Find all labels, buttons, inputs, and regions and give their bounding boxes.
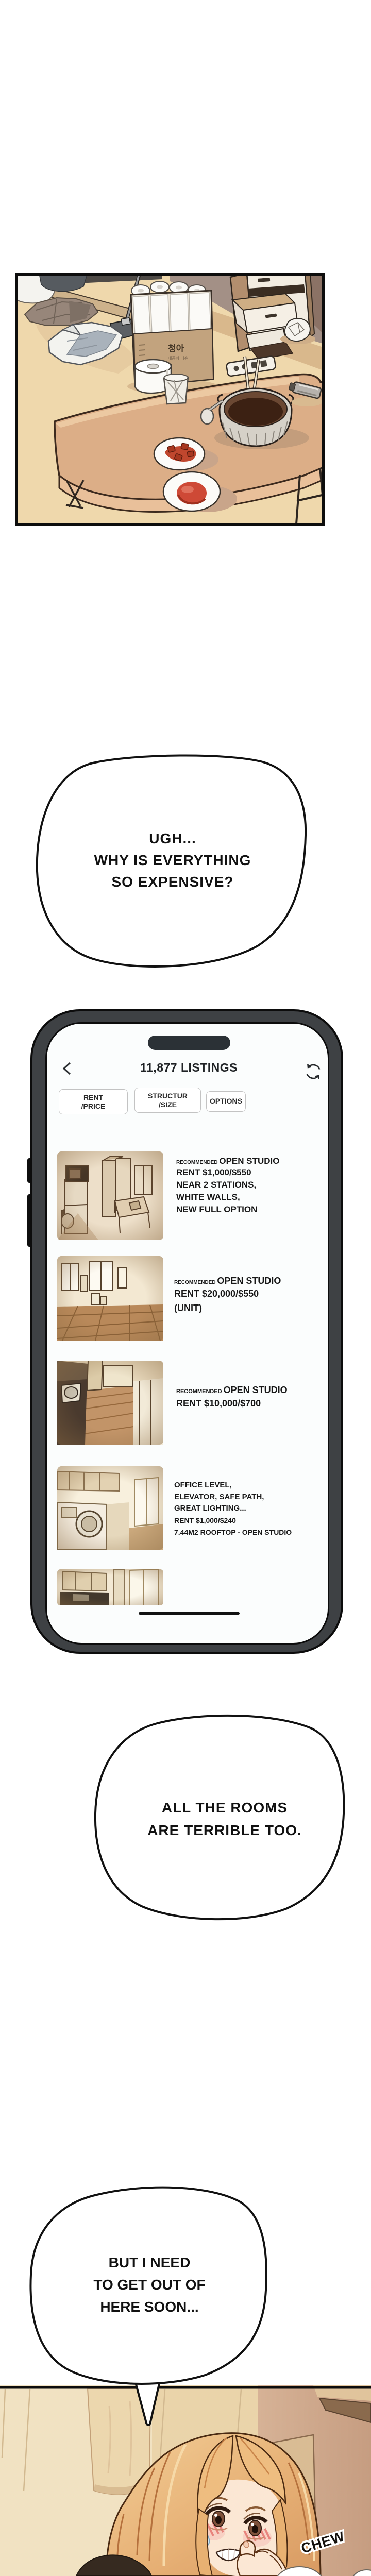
svg-text:대공의 티슈: 대공의 티슈 [168, 355, 188, 361]
svg-text:청아: 청아 [168, 343, 184, 353]
